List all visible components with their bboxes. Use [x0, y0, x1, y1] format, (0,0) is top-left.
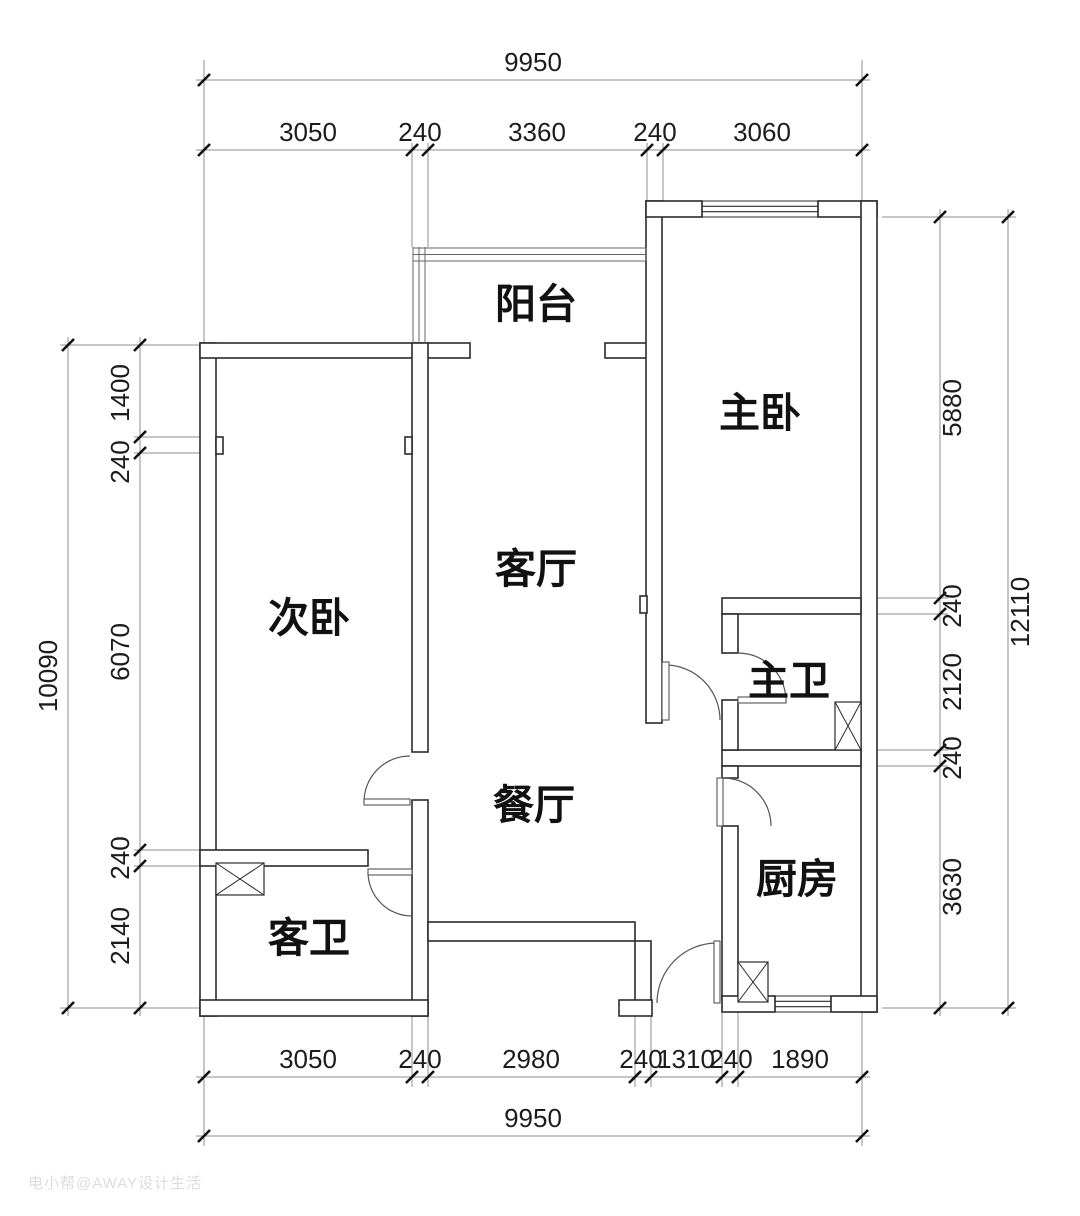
guest-bathroom-door-leaf — [368, 869, 412, 875]
dim-label: 240 — [937, 736, 967, 779]
dim-label: 3060 — [733, 117, 791, 147]
wall — [722, 598, 861, 614]
dim-label: 3360 — [508, 117, 566, 147]
dim-label: 2120 — [937, 653, 967, 711]
guest-bathroom-door-arc — [368, 872, 412, 916]
dim-label: 10090 — [33, 640, 63, 712]
wall — [646, 201, 702, 217]
dim-label: 240 — [105, 440, 135, 483]
watermark: 电小帮@AWAY设计生活 — [28, 1172, 202, 1193]
wall — [861, 201, 877, 1012]
wall — [200, 343, 470, 358]
kitchen-door-leaf — [717, 778, 723, 826]
room-label-second-bedroom: 次卧 — [268, 595, 350, 641]
master-bedroom-door-arc — [667, 665, 720, 720]
wall — [200, 1000, 428, 1016]
room-label-kitchen: 厨房 — [756, 856, 838, 902]
dim-label: 1890 — [771, 1044, 829, 1074]
wall — [722, 750, 861, 766]
dim-label: 2980 — [502, 1044, 560, 1074]
wall — [635, 941, 651, 1001]
wall — [831, 996, 877, 1012]
wall — [722, 614, 738, 653]
room-label-living-room: 客厅 — [495, 546, 577, 592]
entry-door-leaf — [714, 941, 720, 1003]
wall — [722, 700, 738, 750]
wall — [722, 826, 738, 1000]
second-bedroom-door-arc — [364, 756, 410, 802]
wall — [405, 437, 412, 454]
dim-label: 240 — [709, 1044, 752, 1074]
dim-label: 1400 — [105, 364, 135, 422]
room-label-master-bathroom: 主卫 — [748, 658, 830, 704]
dim-label: 240 — [937, 584, 967, 627]
dim-label: 3050 — [279, 1044, 337, 1074]
dim-label: 240 — [398, 117, 441, 147]
entry-door-arc — [657, 943, 717, 1003]
dim-label: 240 — [398, 1044, 441, 1074]
wall — [605, 343, 647, 358]
room-label-dining-room: 餐厅 — [493, 782, 575, 828]
room-label-master-bedroom: 主卧 — [719, 390, 801, 436]
wall — [646, 201, 662, 723]
wall — [412, 800, 428, 1016]
room-label-guest-bathroom: 客卫 — [268, 915, 350, 961]
wall — [216, 437, 223, 454]
floor-plan-canvas: 9950305024033602403060305024029802401310… — [0, 0, 1080, 1216]
floor-plan-page: 9950305024033602403060305024029802401310… — [0, 0, 1080, 1216]
dim-label: 6070 — [105, 623, 135, 681]
second-bedroom-door-leaf — [364, 799, 410, 805]
dim-label: 9950 — [504, 47, 562, 77]
wall — [428, 922, 635, 941]
dim-label: 3050 — [279, 117, 337, 147]
dim-label: 3630 — [937, 858, 967, 916]
wall — [412, 343, 428, 752]
master-bedroom-door-leaf — [662, 662, 669, 720]
wall — [200, 343, 216, 1016]
dim-label: 9950 — [504, 1103, 562, 1133]
room-label-balcony: 阳台 — [495, 281, 577, 327]
wall — [619, 1000, 652, 1016]
kitchen-door-arc — [723, 778, 771, 826]
dim-label: 12110 — [1005, 577, 1035, 647]
dim-label: 2140 — [105, 907, 135, 965]
wall — [640, 596, 647, 613]
dim-label: 240 — [105, 836, 135, 879]
wall — [722, 766, 738, 778]
dim-label: 5880 — [937, 379, 967, 437]
dim-label: 1310 — [657, 1044, 715, 1074]
dim-label: 240 — [633, 117, 676, 147]
